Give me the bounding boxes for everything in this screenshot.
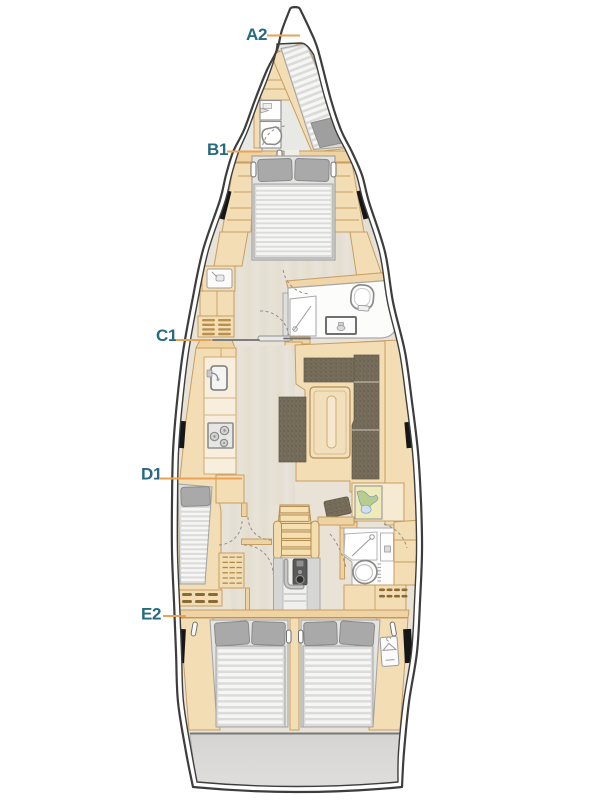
svg-text:A2: A2 (246, 25, 267, 44)
svg-text:B1: B1 (207, 140, 228, 159)
svg-text:E2: E2 (141, 605, 161, 624)
svg-text:D1: D1 (141, 465, 162, 484)
svg-text:C1: C1 (156, 326, 177, 345)
